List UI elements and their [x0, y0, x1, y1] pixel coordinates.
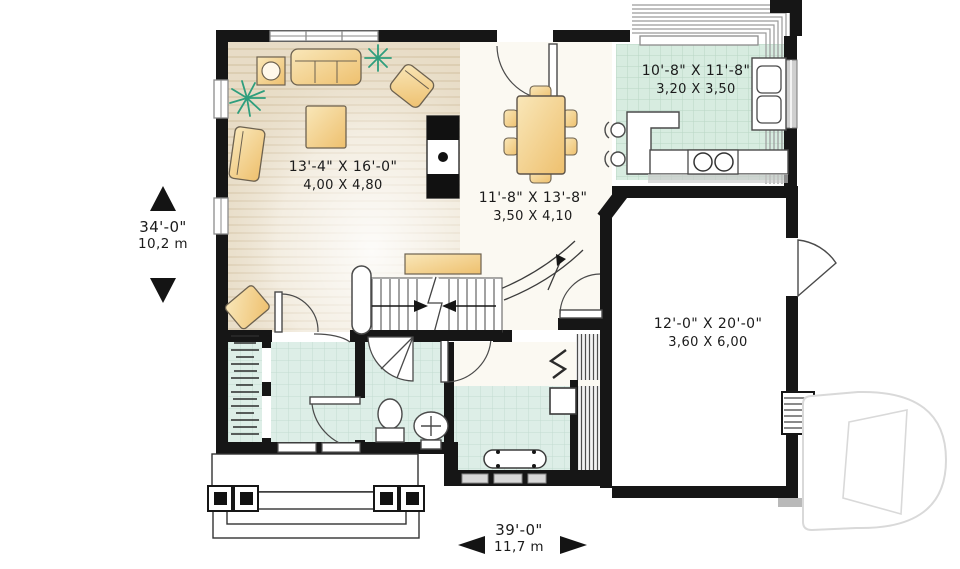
toilet-icon: [376, 399, 404, 442]
kitchen-size-ft: 10'-8" X 11'-8": [606, 61, 786, 81]
living-size-ft: 13'-4" X 16'-0": [253, 157, 433, 177]
console-table-icon: [405, 254, 481, 274]
up-arrow-icon: [150, 186, 176, 211]
stove-icon: [688, 150, 738, 174]
garage-stairs-hatch: [578, 386, 600, 470]
depth-m: 10,2 m: [118, 236, 208, 252]
kitchen-size-label: 10'-8" X 11'-8" 3,20 X 3,50: [606, 61, 786, 100]
washer-icon: [550, 388, 576, 414]
garage-size-ft: 12'-0" X 20'-0": [618, 314, 798, 334]
drummond-logo-watermark: [803, 392, 946, 530]
garage-size-label: 12'-0" X 20'-0" 3,60 X 6,00: [618, 314, 798, 353]
living-room-size-label: 13'-4" X 16'-0" 4,00 X 4,80: [253, 157, 433, 196]
floor-plan-page: 13'-4" X 16'-0" 4,00 X 4,80 11'-8" X 13'…: [0, 0, 960, 569]
right-arrow-icon: [560, 536, 587, 554]
depth-ft: 34'-0": [118, 218, 208, 236]
floor-plan-drawing: [0, 0, 960, 569]
deck-corner-wall-side: [790, 0, 802, 36]
down-arrow-icon: [150, 278, 176, 303]
counter-shadow: [648, 174, 788, 183]
closet-opening2: [262, 396, 271, 438]
bench-icon: [484, 450, 546, 468]
stair-newel-wall: [352, 266, 371, 334]
dining-size-m: 3,50 X 4,10: [443, 208, 623, 227]
closet-opening: [262, 348, 271, 382]
sofa-icon: [291, 49, 361, 85]
coffee-table-icon: [306, 106, 346, 148]
garage-size-m: 3,60 X 6,00: [618, 334, 798, 353]
porch: [208, 454, 424, 538]
porch-step-inner: [241, 492, 392, 509]
side-table-lamp-icon: [257, 57, 285, 85]
hall-closet-hatch: [576, 334, 600, 380]
kitchen-size-m: 3,20 X 3,50: [606, 81, 786, 100]
living-size-m: 4,00 X 4,80: [253, 177, 433, 196]
dining-room-size-label: 11'-8" X 13'-8" 3,50 X 4,10: [443, 188, 623, 227]
dining-size-ft: 11'-8" X 13'-8": [443, 188, 623, 208]
depth-dimension-label: 34'-0" 10,2 m: [118, 218, 208, 252]
